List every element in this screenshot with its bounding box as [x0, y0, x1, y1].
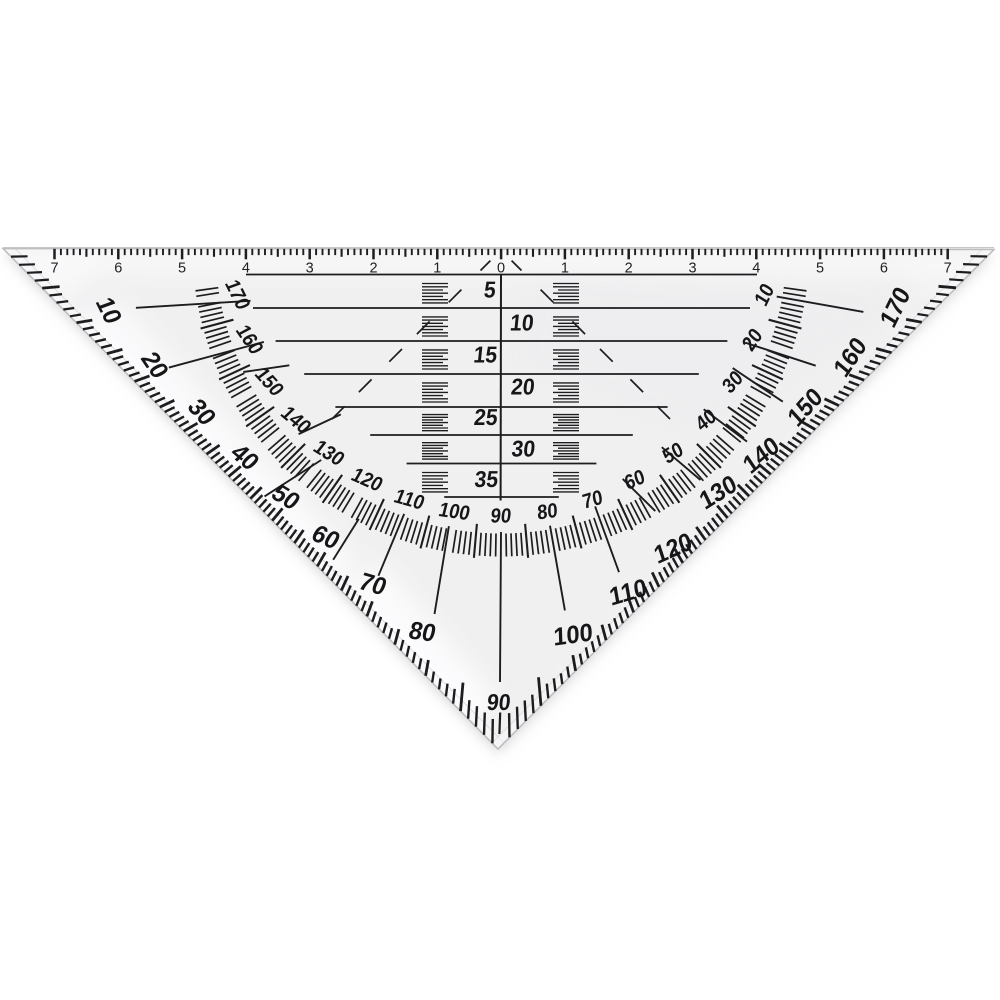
svg-text:90: 90	[489, 504, 512, 527]
svg-text:5: 5	[816, 261, 824, 277]
svg-text:100: 100	[436, 498, 472, 525]
svg-text:10: 10	[509, 310, 535, 336]
svg-text:100: 100	[553, 619, 593, 652]
svg-text:5: 5	[178, 261, 186, 277]
svg-text:7: 7	[944, 261, 952, 277]
svg-text:6: 6	[880, 261, 888, 277]
svg-text:20: 20	[510, 374, 536, 400]
svg-text:35: 35	[473, 466, 499, 492]
svg-text:90: 90	[486, 689, 512, 715]
svg-text:15: 15	[472, 342, 498, 368]
svg-text:7: 7	[50, 261, 58, 277]
svg-text:30: 30	[510, 436, 536, 462]
svg-text:80: 80	[537, 499, 558, 525]
svg-text:6: 6	[114, 261, 122, 277]
svg-text:25: 25	[473, 404, 499, 430]
